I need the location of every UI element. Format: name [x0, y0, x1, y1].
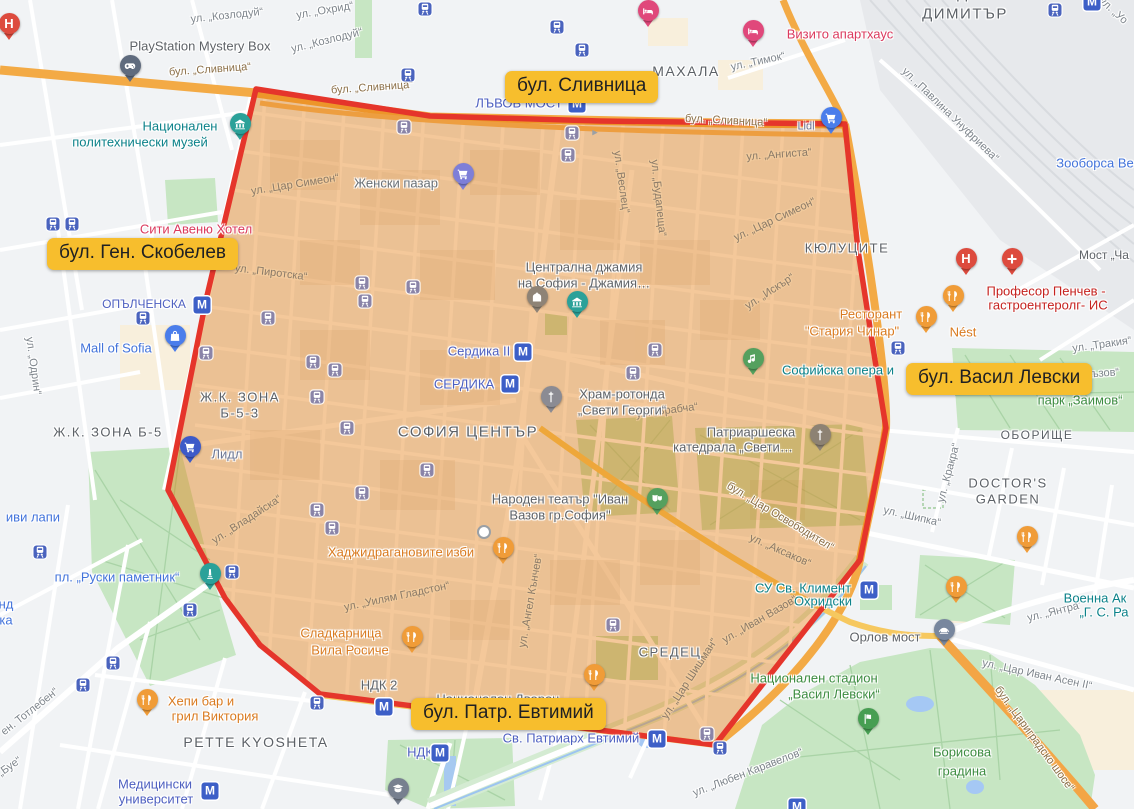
- metro-evtimiy-icon[interactable]: М: [649, 731, 666, 748]
- lidl-label[interactable]: Лидл: [212, 448, 243, 463]
- tram-stop-icon[interactable]: [892, 342, 905, 355]
- stadion-label-1[interactable]: Национален стадион: [750, 672, 877, 687]
- teatar-label-2[interactable]: Вазов гр.София": [509, 509, 610, 524]
- tram-stop-icon[interactable]: [307, 356, 320, 369]
- location-dot[interactable]: [477, 525, 491, 539]
- ndk2-label[interactable]: НДК 2: [361, 679, 398, 694]
- rosiche-label-1[interactable]: Сладкарница: [300, 627, 381, 642]
- tram-stop-icon[interactable]: [34, 546, 47, 559]
- su-label-2[interactable]: Охридски: [794, 595, 852, 610]
- dimitar-label: ДИМИТЪР: [922, 5, 1008, 22]
- ka-label[interactable]: ка: [0, 614, 13, 629]
- city-avenue-label[interactable]: Сити Авеню Хотел: [140, 223, 252, 238]
- tram-stop-icon[interactable]: [137, 312, 150, 325]
- tram-stop-icon[interactable]: [262, 312, 275, 325]
- borisova-label-2[interactable]: градина: [938, 765, 986, 780]
- patriarsheska-label-2[interactable]: катедрала „Свети…: [673, 441, 793, 456]
- oborishte-label: ОБОРИЩЕ: [1001, 429, 1074, 443]
- metro-ndk-icon[interactable]: М: [432, 745, 449, 762]
- metro-serdika-icon[interactable]: М: [502, 376, 519, 393]
- evtimiy-station-label[interactable]: Св. Патриарх Евтимий: [503, 732, 640, 747]
- tram-stop-icon[interactable]: [649, 344, 662, 357]
- tram-stop-icon[interactable]: [1049, 4, 1062, 17]
- tram-stop-icon[interactable]: [402, 69, 415, 82]
- doctors-garden-label-2: GARDEN: [976, 493, 1041, 508]
- politehnicheski-label-2[interactable]: политехнически музей: [72, 136, 207, 151]
- tram-stop-icon[interactable]: [184, 604, 197, 617]
- pette-label: PETTE KYOSHETA: [183, 734, 328, 750]
- nd-label[interactable]: нд: [0, 598, 13, 613]
- hepi-label-2[interactable]: грил Виктория: [172, 710, 259, 725]
- tram-stop-icon[interactable]: [419, 3, 432, 16]
- dzhamiya-label-1[interactable]: Централна джамия: [526, 261, 643, 276]
- tram-stop-icon[interactable]: [714, 742, 727, 755]
- tram-stop-icon[interactable]: [356, 277, 369, 290]
- tram-stop-icon[interactable]: [359, 295, 372, 308]
- callout-vasil-levski: бул. Васил Левски: [906, 363, 1092, 395]
- borisova-label-1[interactable]: Борисова: [933, 746, 991, 761]
- tram-stop-icon[interactable]: [107, 657, 120, 670]
- chinar-label-2[interactable]: "Стария Чинар": [805, 325, 899, 340]
- ruski-pametnik-label[interactable]: пл. „Руски паметник“: [55, 571, 180, 586]
- teatar-label-1[interactable]: Народен театър "Иван: [492, 493, 628, 508]
- playstation-label[interactable]: PlayStation Mystery Box: [130, 40, 271, 55]
- tram-stop-icon[interactable]: [326, 522, 339, 535]
- tram-stop-icon[interactable]: [607, 619, 620, 632]
- doctors-garden-label-1: DOCTOR'S: [968, 477, 1047, 492]
- sredets-label: СРЕДЕЦ: [639, 646, 702, 661]
- metro-south-icon[interactable]: М: [789, 799, 806, 809]
- zooborsa-label[interactable]: Зооборса Ве: [1056, 157, 1133, 172]
- stadion-label-2[interactable]: „Васил Левски“: [788, 688, 880, 703]
- zhenski-pazar-label[interactable]: Женски пазар: [354, 177, 438, 192]
- chinar-label-1[interactable]: Ресторант: [840, 308, 902, 323]
- zona-b5-label: Ж.К. ЗОНА Б-5: [53, 426, 163, 441]
- orlov-most-label[interactable]: Орлов мост: [850, 631, 921, 646]
- tram-stop-icon[interactable]: [407, 281, 420, 294]
- tram-stop-icon[interactable]: [311, 504, 324, 517]
- tram-stop-icon[interactable]: [311, 697, 324, 710]
- izbi-label[interactable]: Хаджидрагановите изби: [328, 546, 474, 561]
- metro-meduni-icon[interactable]: М: [202, 783, 219, 800]
- tram-stop-icon[interactable]: [562, 149, 575, 162]
- tram-stop-icon[interactable]: [226, 566, 239, 579]
- hram-label-2[interactable]: „Свети Георги“: [578, 404, 666, 419]
- tram-stop-icon[interactable]: [566, 127, 579, 140]
- tram-stop-icon[interactable]: [356, 487, 369, 500]
- politehnicheski-label-1[interactable]: Национален: [143, 120, 218, 135]
- tram-stop-icon[interactable]: [77, 679, 90, 692]
- tram-stop-icon[interactable]: [341, 422, 354, 435]
- meduni-label-2[interactable]: университет: [119, 793, 193, 808]
- zona-b53-label-2: Б-5-3: [220, 407, 259, 422]
- voenna-label-2[interactable]: „Г. С. Ра: [1079, 606, 1128, 621]
- zona-b53-label-1: Ж.К. ЗОНА: [200, 391, 280, 406]
- tram-stop-icon[interactable]: [200, 347, 213, 360]
- map-viewport[interactable]: PlayStation Mystery Boxбул. „Сливница“бу…: [0, 0, 1134, 809]
- rosiche-label-2[interactable]: Вила Росиче: [311, 644, 388, 659]
- hadzhi-label: ХАДЖИ: [934, 0, 997, 3]
- metro-serdika2-icon[interactable]: М: [515, 344, 532, 361]
- oneway-arrow-icon: ▸: [592, 126, 598, 139]
- tram-stop-icon[interactable]: [311, 391, 324, 404]
- tram-stop-icon[interactable]: [329, 364, 342, 377]
- zaimov-label[interactable]: парк „Заимов“: [1038, 394, 1123, 409]
- hepi-label-1[interactable]: Хепи бар и: [168, 695, 234, 710]
- callout-slivnitsa: бул. Сливница: [505, 71, 658, 103]
- metro-topright-icon[interactable]: М: [1084, 0, 1101, 11]
- hram-label-1[interactable]: Храм-ротонда: [579, 388, 665, 403]
- serdika2-label[interactable]: Сердика II: [448, 345, 510, 360]
- metro-opalchenska-icon[interactable]: М: [194, 297, 211, 314]
- tram-stop-icon[interactable]: [47, 218, 60, 231]
- mall-sofia-label[interactable]: Mall of Sofia: [80, 342, 152, 357]
- callout-patr-evtimiy: бул. Патр. Евтимий: [411, 698, 606, 730]
- serdika-label[interactable]: СЕРДИКА: [434, 378, 494, 393]
- tram-stop-icon[interactable]: [701, 728, 714, 741]
- tram-stop-icon[interactable]: [627, 367, 640, 380]
- most-cha-label[interactable]: Мост „Ча: [1079, 249, 1129, 263]
- nest-label[interactable]: Nést: [950, 326, 977, 341]
- patriarsheska-label-1[interactable]: Патриаршеска: [707, 426, 796, 441]
- sofia-center-label: СОФИЯ ЦЕНТЪР: [398, 423, 538, 440]
- tram-stop-icon[interactable]: [576, 44, 589, 57]
- kyulutsite-label: КЮЛУЦИТЕ: [805, 242, 889, 257]
- penchev-label-2[interactable]: гастроентеролг- ИС: [988, 299, 1107, 314]
- tram-stop-icon[interactable]: [551, 21, 564, 34]
- callout-skobelev: бул. Ген. Скобелев: [47, 238, 238, 270]
- metro-su-kliment-icon[interactable]: М: [861, 582, 878, 599]
- tram-stop-icon[interactable]: [421, 464, 434, 477]
- opalchenska-label[interactable]: ОПЪЛЧЕНСКА: [102, 298, 186, 312]
- ndk-station-label[interactable]: НДК: [407, 746, 433, 761]
- mahala-label: МАХАЛА: [652, 63, 720, 79]
- tram-stop-icon[interactable]: [66, 218, 79, 231]
- vizito-label[interactable]: Визито апартхаус: [787, 28, 894, 43]
- tram-stop-icon[interactable]: [398, 121, 411, 134]
- metro-ndk2-icon[interactable]: М: [376, 699, 393, 716]
- meduni-label-1[interactable]: Медицински: [118, 778, 192, 793]
- opera-label[interactable]: Софийска опера и: [782, 364, 894, 379]
- lidl-small-label[interactable]: Lidl: [797, 121, 814, 134]
- divi-lapi-label[interactable]: иви лапи: [6, 511, 60, 526]
